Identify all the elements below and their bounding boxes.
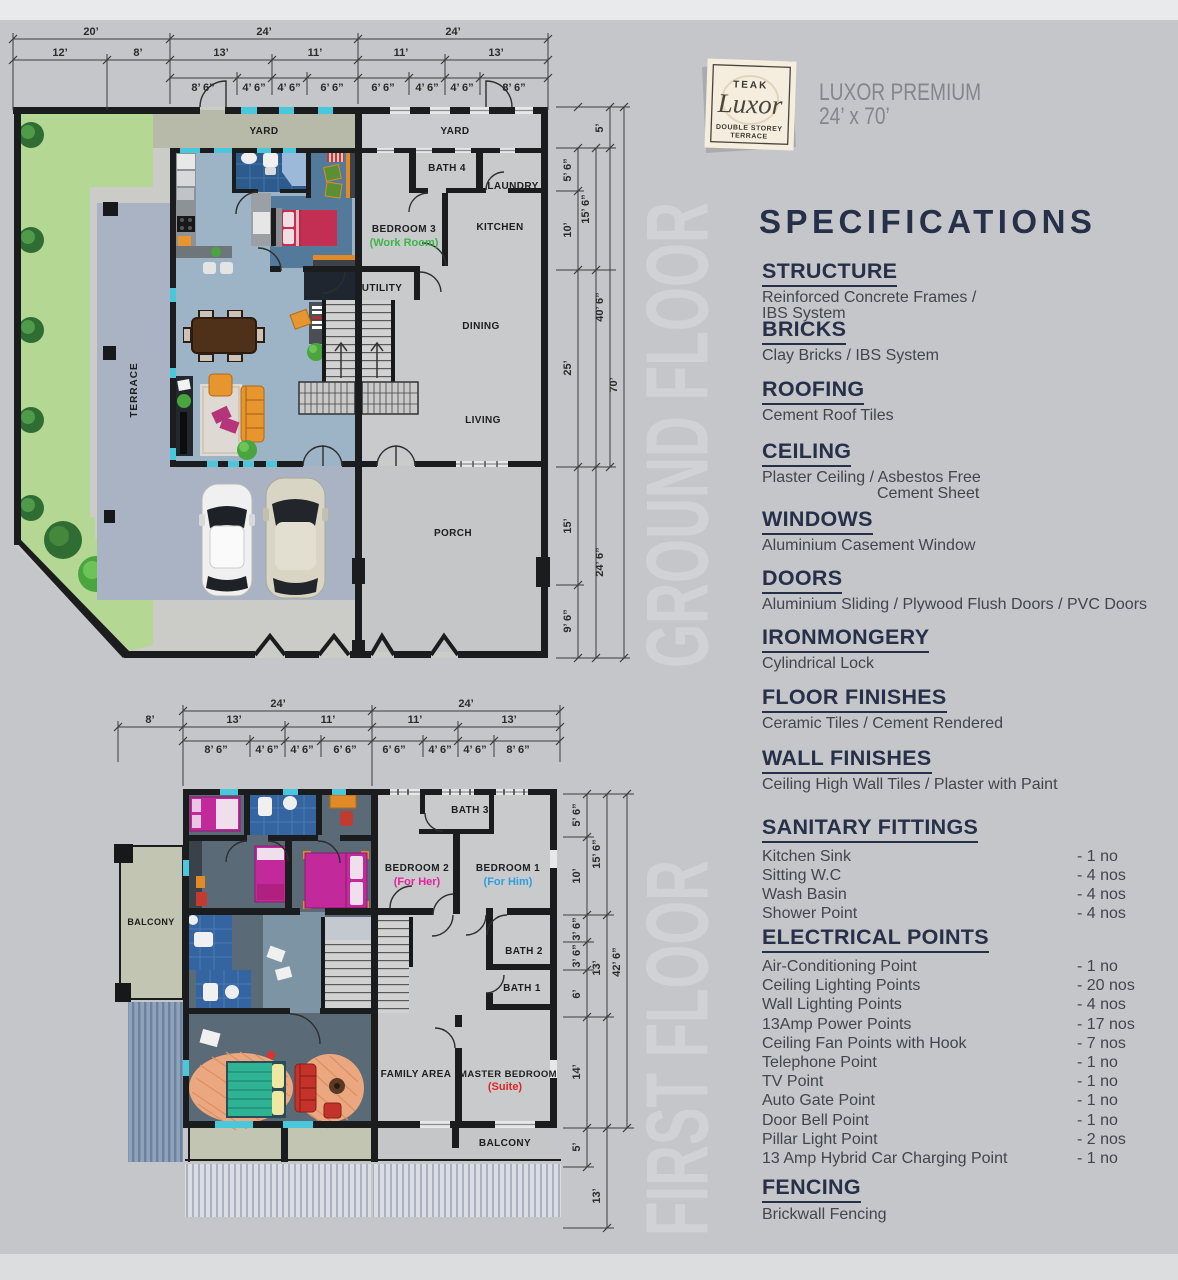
svg-text:TERRACE: TERRACE: [730, 132, 768, 140]
svg-text:BALCONY: BALCONY: [479, 1138, 531, 1149]
svg-text:5’: 5’: [571, 1142, 583, 1151]
svg-text:6’ 6”: 6’ 6”: [333, 744, 356, 756]
svg-text:MASTER BEDROOM: MASTER BEDROOM: [459, 1069, 557, 1080]
svg-text:BATH 2: BATH 2: [505, 946, 543, 957]
svg-text:BATH 3: BATH 3: [451, 805, 489, 816]
svg-text:10’: 10’: [562, 222, 574, 237]
svg-text:YARD: YARD: [440, 126, 469, 137]
svg-text:4’ 6”: 4’ 6”: [428, 744, 451, 756]
svg-text:12’: 12’: [52, 47, 67, 59]
svg-text:YARD: YARD: [249, 126, 278, 137]
svg-text:13’: 13’: [226, 714, 241, 726]
svg-text:15’ 6”: 15’ 6”: [591, 839, 603, 868]
svg-text:10’: 10’: [571, 868, 583, 883]
svg-text:8’ 6”: 8’ 6”: [502, 82, 525, 94]
svg-text:(Suite): (Suite): [488, 1081, 523, 1093]
svg-text:6’: 6’: [571, 989, 583, 998]
svg-text:4’ 6”: 4’ 6”: [450, 82, 473, 94]
svg-text:BALCONY: BALCONY: [127, 917, 174, 927]
svg-text:13’: 13’: [591, 1188, 603, 1203]
svg-text:15’ 6”: 15’ 6”: [580, 194, 592, 223]
svg-text:LIVING: LIVING: [465, 415, 501, 426]
svg-text:40’ 6”: 40’ 6”: [594, 292, 606, 321]
svg-text:3’ 6”: 3’ 6”: [571, 944, 583, 967]
svg-text:11’: 11’: [408, 714, 423, 726]
svg-text:BATH 1: BATH 1: [503, 983, 541, 994]
svg-text:6’ 6”: 6’ 6”: [382, 744, 405, 756]
svg-text:20’: 20’: [83, 26, 98, 38]
svg-text:6’ 6”: 6’ 6”: [320, 82, 343, 94]
svg-text:24’ 6”: 24’ 6”: [594, 547, 606, 576]
svg-text:13’: 13’: [213, 47, 228, 59]
svg-text:14’: 14’: [571, 1064, 583, 1079]
svg-text:UTILITY: UTILITY: [362, 283, 403, 294]
svg-text:(For Her): (For Her): [394, 876, 441, 888]
svg-text:TERRACE: TERRACE: [129, 362, 140, 417]
svg-text:BEDROOM 2: BEDROOM 2: [385, 863, 449, 874]
svg-text:4’ 6”: 4’ 6”: [415, 82, 438, 94]
svg-text:DINING: DINING: [462, 321, 499, 332]
svg-text:13’: 13’: [591, 960, 603, 975]
svg-text:3’ 6”: 3’ 6”: [571, 917, 583, 940]
svg-text:15’: 15’: [562, 518, 574, 533]
svg-text:70’: 70’: [608, 377, 620, 392]
svg-text:(For Him): (For Him): [484, 876, 533, 888]
svg-text:PORCH: PORCH: [434, 528, 472, 539]
svg-text:24’: 24’: [445, 26, 460, 38]
svg-text:5’ 6”: 5’ 6”: [571, 803, 583, 826]
svg-text:BEDROOM 3: BEDROOM 3: [372, 224, 436, 235]
svg-text:42’ 6”: 42’ 6”: [611, 947, 623, 976]
svg-text:24’: 24’: [458, 698, 473, 710]
svg-text:11’: 11’: [321, 714, 336, 726]
svg-text:(Work Room): (Work Room): [370, 237, 439, 249]
svg-text:11’: 11’: [394, 47, 409, 59]
svg-text:24’: 24’: [256, 26, 271, 38]
svg-text:4’ 6”: 4’ 6”: [242, 82, 265, 94]
svg-text:4’ 6”: 4’ 6”: [463, 744, 486, 756]
svg-text:LAUNDRY: LAUNDRY: [487, 181, 538, 192]
svg-text:24’: 24’: [270, 698, 285, 710]
svg-text:FAMILY AREA: FAMILY AREA: [381, 1069, 452, 1080]
svg-text:BATH 4: BATH 4: [428, 163, 466, 174]
svg-text:4’ 6”: 4’ 6”: [277, 82, 300, 94]
svg-text:Luxor: Luxor: [716, 88, 783, 120]
svg-text:4’ 6”: 4’ 6”: [290, 744, 313, 756]
svg-text:25’: 25’: [562, 360, 574, 375]
svg-text:8’ 6”: 8’ 6”: [204, 744, 227, 756]
svg-text:11’: 11’: [308, 47, 323, 59]
svg-text:9’ 6”: 9’ 6”: [562, 609, 574, 632]
svg-text:13’: 13’: [501, 714, 516, 726]
svg-text:6’ 6”: 6’ 6”: [371, 82, 394, 94]
svg-text:13’: 13’: [488, 47, 503, 59]
svg-text:8’: 8’: [145, 714, 154, 726]
svg-text:8’ 6”: 8’ 6”: [191, 82, 214, 94]
svg-text:BEDROOM 1: BEDROOM 1: [476, 863, 540, 874]
svg-text:8’ 6”: 8’ 6”: [506, 744, 529, 756]
svg-text:KITCHEN: KITCHEN: [476, 222, 523, 233]
svg-text:8’: 8’: [133, 47, 142, 59]
svg-text:5’: 5’: [594, 123, 606, 132]
svg-text:5’ 6”: 5’ 6”: [562, 158, 574, 181]
svg-text:4’ 6”: 4’ 6”: [255, 744, 278, 756]
